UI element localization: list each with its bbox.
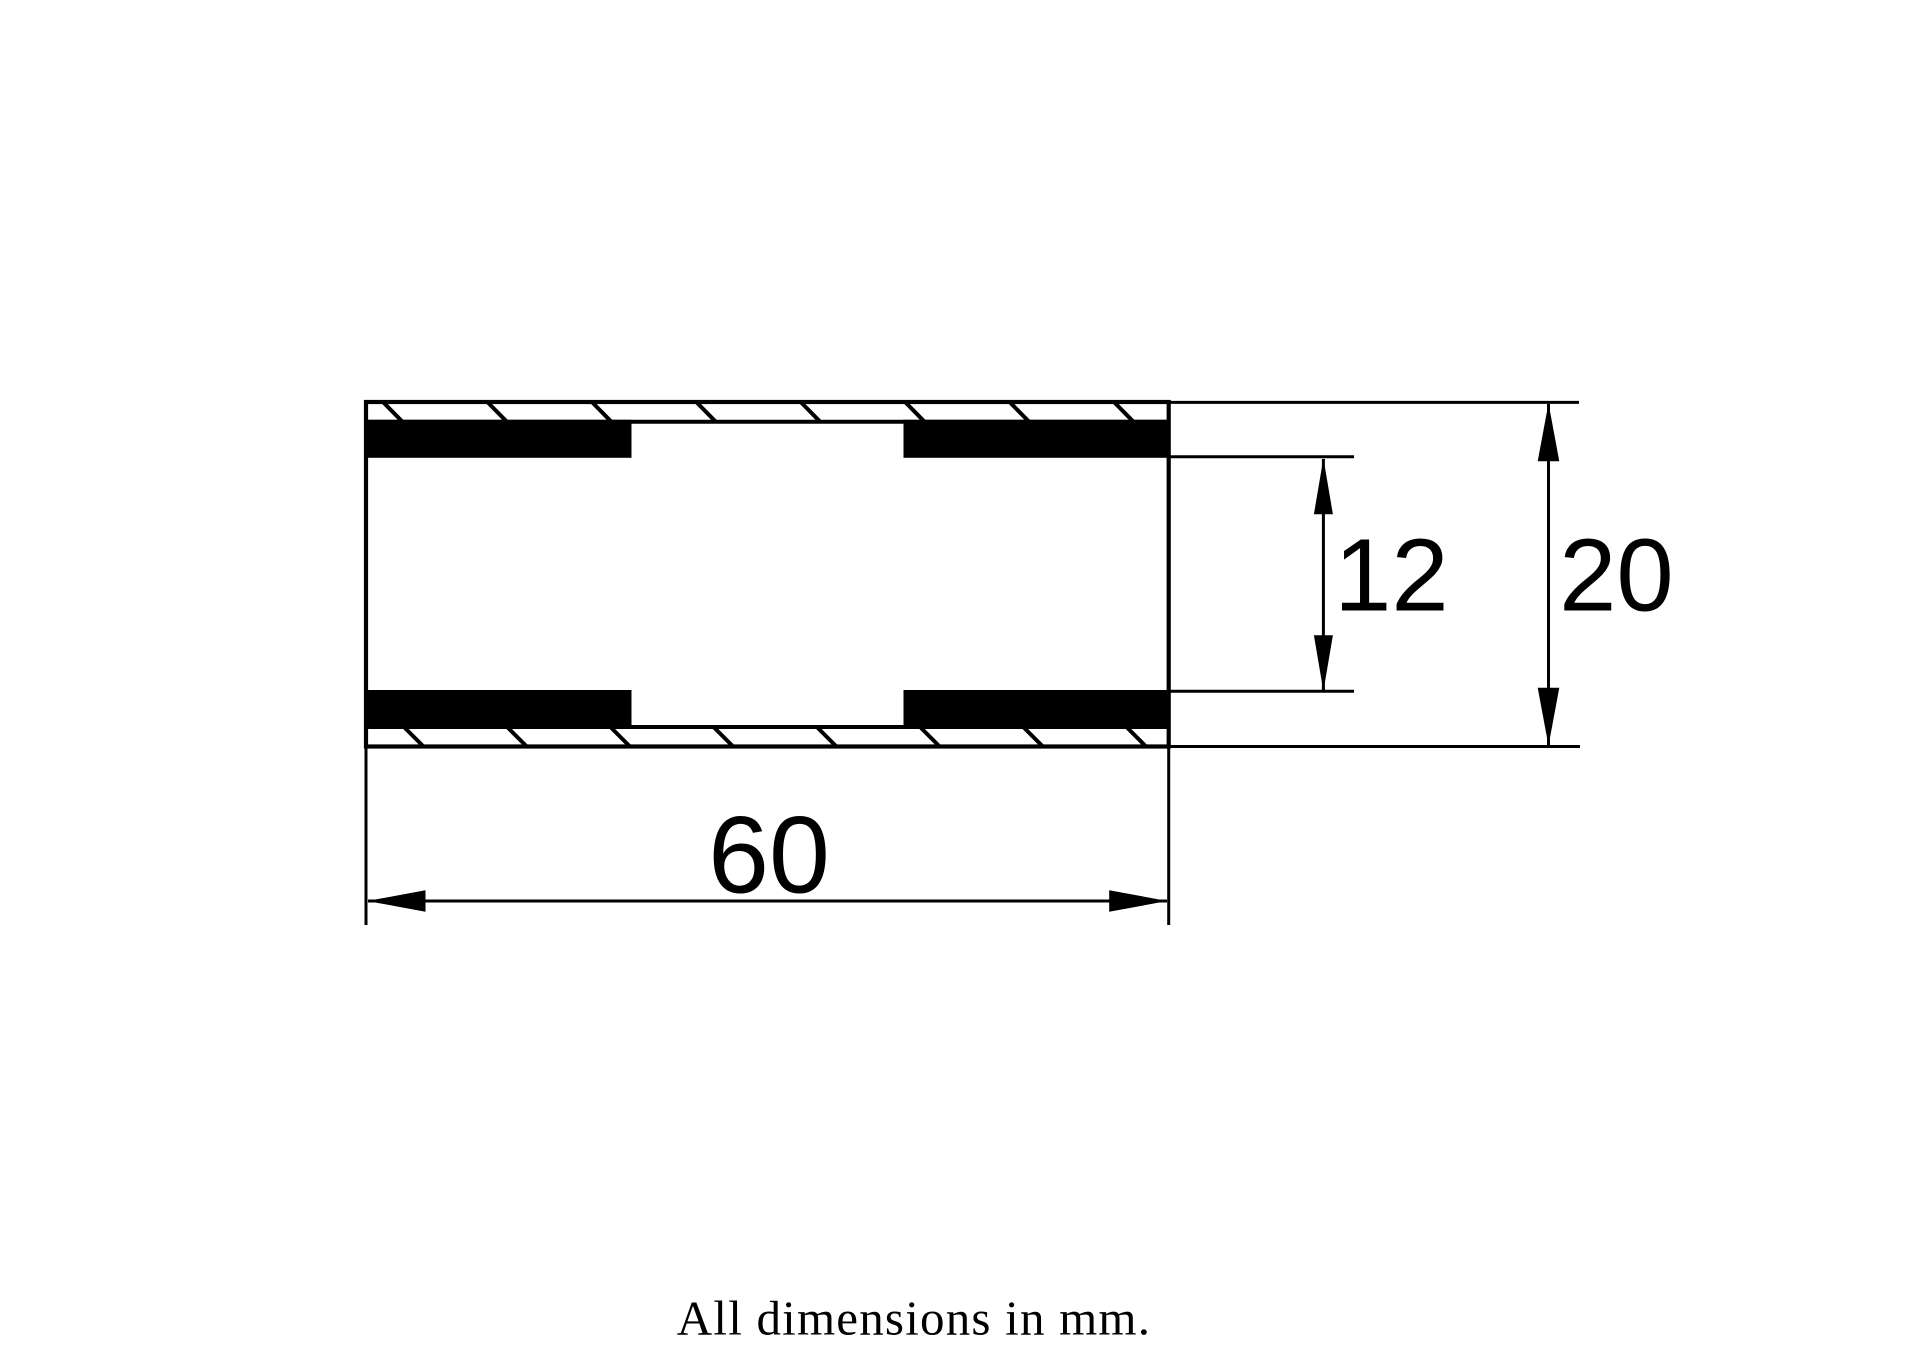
svg-text:12: 12 [1334, 518, 1449, 633]
svg-text:20: 20 [1559, 518, 1674, 633]
svg-text:All dimensions in mm.: All dimensions in mm. [677, 1291, 1151, 1346]
svg-text:60: 60 [708, 795, 830, 917]
